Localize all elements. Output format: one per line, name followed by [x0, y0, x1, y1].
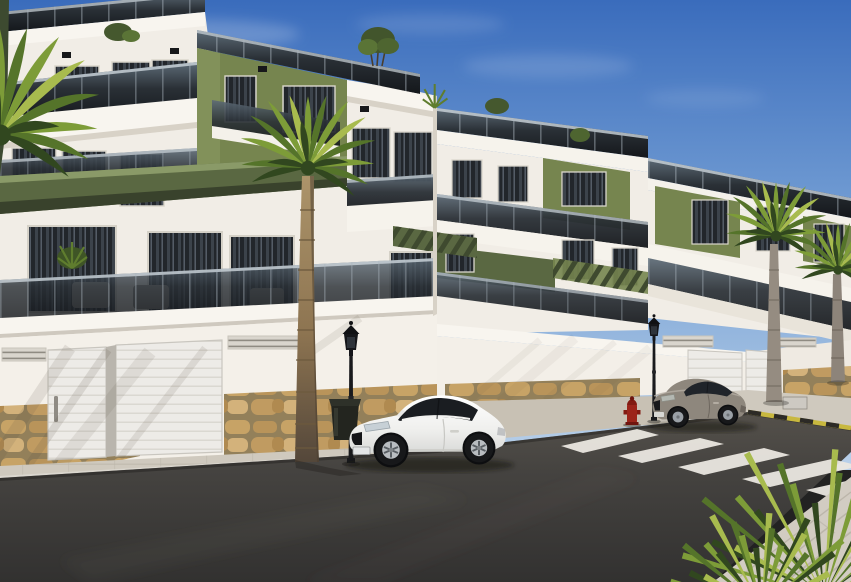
vent-grille-left — [2, 348, 46, 361]
scene-canvas — [0, 0, 851, 582]
car-gray-front-wheel — [667, 406, 689, 428]
car-white-front-wheel — [374, 433, 409, 468]
corner-edge — [433, 96, 437, 316]
car-gray-rear-wheel — [718, 405, 739, 426]
vent-grille-mid — [228, 336, 300, 349]
palm-crown — [771, 231, 782, 242]
architectural-render-scene — [0, 0, 851, 582]
palm-crown — [833, 265, 842, 274]
car-white-plate — [353, 447, 370, 455]
palm-crown — [301, 161, 315, 175]
car-white-rear-wheel — [463, 432, 496, 465]
